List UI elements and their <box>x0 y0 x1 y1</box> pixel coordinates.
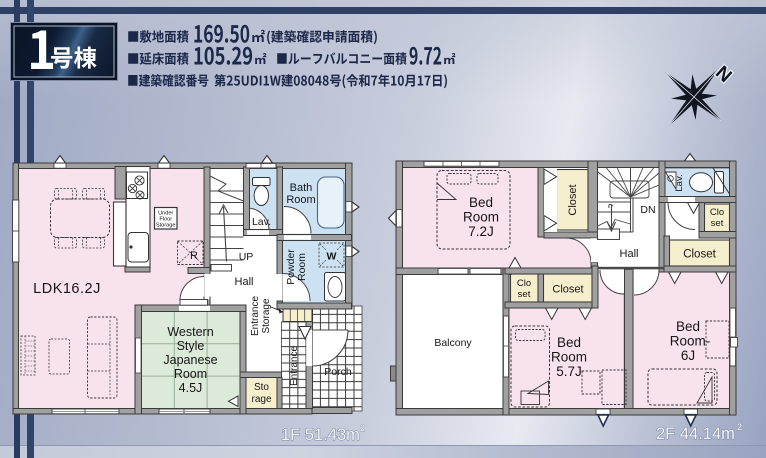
svg-text:LDK16.2J: LDK16.2J <box>33 281 101 297</box>
svg-text:Hall: Hall <box>620 248 639 260</box>
svg-text:4.5J: 4.5J <box>179 381 203 395</box>
svg-text:Western: Western <box>167 325 213 339</box>
svg-text:N: N <box>711 62 735 87</box>
svg-text:Clo: Clo <box>710 207 724 218</box>
svg-text:2: 2 <box>360 423 365 433</box>
svg-text:set: set <box>711 218 724 229</box>
svg-text:Closet: Closet <box>552 284 583 296</box>
svg-text:Sto: Sto <box>254 382 269 393</box>
svg-text:2F 44.14m: 2F 44.14m <box>656 425 735 443</box>
svg-text:W: W <box>327 251 337 263</box>
svg-text:Closet: Closet <box>567 184 579 215</box>
svg-text:Room: Room <box>174 367 207 381</box>
svg-text:Entrance: Entrance <box>289 346 300 386</box>
svg-text:Lav.: Lav. <box>252 216 271 228</box>
svg-text:6J: 6J <box>681 348 695 363</box>
svg-text:Room: Room <box>551 350 587 365</box>
svg-text:Bed: Bed <box>676 319 700 334</box>
svg-text:1F 51.43m: 1F 51.43m <box>281 426 360 444</box>
svg-text:Room-: Room- <box>670 334 711 349</box>
svg-text:5.7J: 5.7J <box>556 364 582 379</box>
svg-text:Entrance: Entrance <box>250 296 261 336</box>
svg-text:Storage: Storage <box>156 223 176 229</box>
svg-text:DN: DN <box>640 204 655 216</box>
svg-text:Porch: Porch <box>324 366 352 378</box>
svg-text:Room: Room <box>296 253 308 281</box>
svg-text:rage: rage <box>251 394 271 405</box>
svg-text:Room: Room <box>286 194 315 206</box>
svg-text:Bath: Bath <box>290 182 313 194</box>
svg-text:R: R <box>190 250 198 262</box>
svg-text:Balcony: Balcony <box>434 337 472 349</box>
svg-text:Bed: Bed <box>557 335 581 350</box>
svg-text:Room: Room <box>463 210 499 225</box>
svg-text:2: 2 <box>737 422 742 432</box>
svg-text:Bed: Bed <box>469 195 493 210</box>
svg-text:Style: Style <box>177 339 205 353</box>
svg-text:Japanese: Japanese <box>163 353 217 367</box>
svg-text:Closet: Closet <box>683 249 716 261</box>
svg-text:7.2J: 7.2J <box>468 224 494 239</box>
svg-text:Lav.: Lav. <box>674 174 685 191</box>
svg-text:Storage: Storage <box>261 298 272 333</box>
svg-text:Hall: Hall <box>235 276 254 288</box>
svg-text:set: set <box>518 289 531 300</box>
svg-text:UP: UP <box>239 251 254 263</box>
svg-text:Clo: Clo <box>517 278 531 289</box>
